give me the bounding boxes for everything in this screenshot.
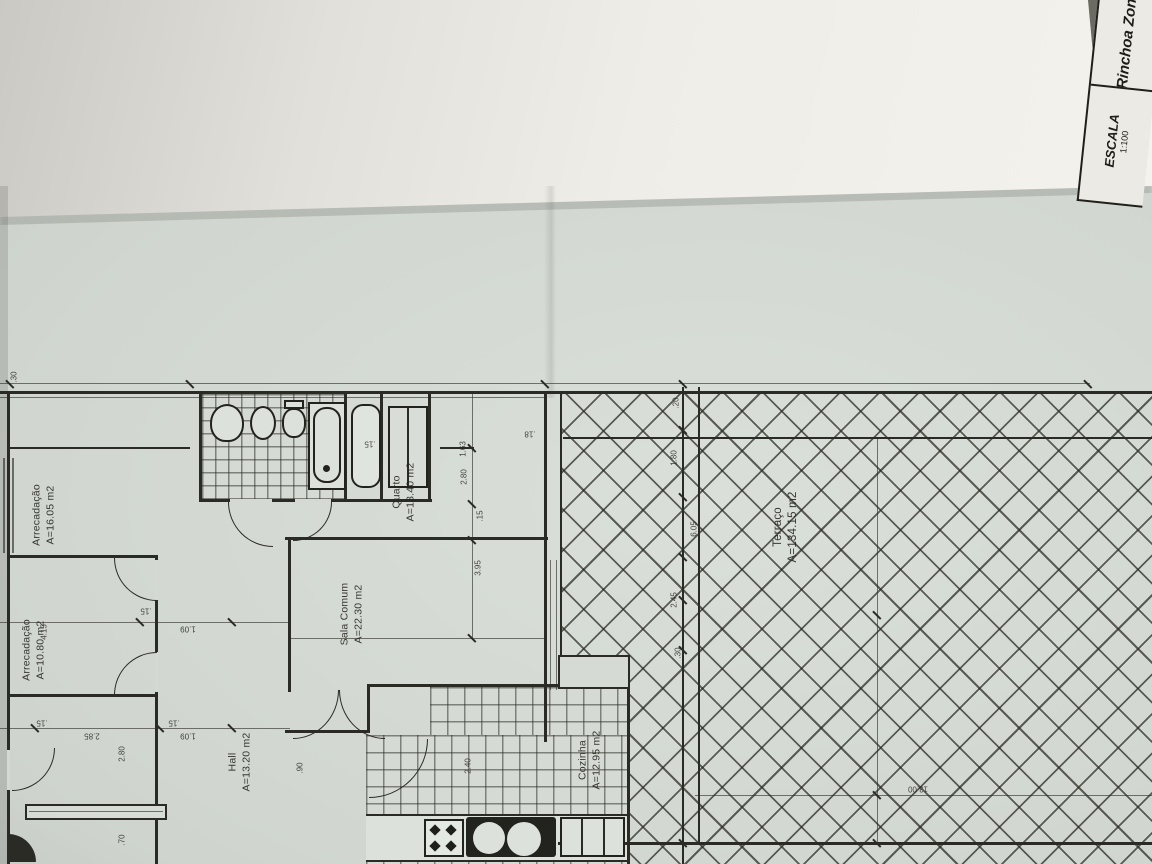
wardrobe (25, 804, 167, 820)
room-name: Arrecadação (20, 619, 34, 681)
room-label-terraco: Terraço A=134.15 m2 (771, 492, 801, 563)
terrace-step (558, 655, 630, 689)
window (12, 458, 14, 553)
kitchen-tiles-upper (430, 687, 627, 737)
window (550, 560, 551, 690)
wall (199, 391, 202, 502)
project-name: Rinchoa Zona (1114, 0, 1141, 89)
dim-label: 1.09 (180, 732, 196, 741)
door-arc (293, 502, 332, 541)
window (556, 560, 557, 690)
room-name: Terraço (771, 507, 786, 547)
dim-label: .18 (524, 430, 535, 439)
room-name: Hall (226, 753, 240, 772)
wall-exterior-right (544, 391, 547, 742)
basin-icon (210, 404, 244, 442)
kitchen-cabinet (560, 817, 625, 857)
dimension-tick (541, 380, 550, 389)
terrace-hatch (560, 394, 1152, 864)
dim-label: .30 (10, 371, 19, 382)
toilet-cistern (284, 400, 304, 409)
room-name: Sala Comum (338, 583, 352, 646)
wall (288, 537, 291, 692)
room-area: A=13.40 m2 (404, 463, 418, 522)
terrace-edge (563, 437, 1152, 439)
dim-label: .15 (168, 719, 179, 728)
wall (8, 447, 190, 449)
wall-exterior-left (7, 391, 10, 864)
toilet-icon (282, 408, 306, 438)
scale-value: 1:100 (1118, 130, 1130, 153)
room-label-quarto: Quarto A=13.40 m2 (390, 463, 417, 522)
door-arc (114, 558, 157, 601)
wall (285, 537, 548, 540)
room-area: A=16.05 m2 (44, 486, 58, 545)
dim-label: 3.95 (474, 560, 483, 576)
door-arc (114, 652, 157, 695)
room-area: A=12.95 m2 (590, 731, 604, 790)
dim-label: 13.00 (908, 785, 928, 794)
sink-bowl (507, 822, 541, 856)
room-name: Quarto (390, 475, 404, 508)
dim-label: 1.63 (459, 441, 468, 457)
bathtub-drain (323, 465, 330, 472)
dimension-line (0, 728, 290, 729)
scanned-floor-plan-photo: Arrecadação A=16.05 m2 Arrecadação A=10.… (0, 0, 1152, 864)
dim-label: 2.40 (464, 758, 473, 774)
dim-label: .15 (364, 440, 375, 449)
wall (0, 391, 1152, 394)
dimension-line (877, 437, 878, 845)
wall (558, 842, 1152, 845)
room-label-hall: Hall A=13.20 m2 (226, 733, 253, 792)
room-name: Cozinha (576, 740, 590, 780)
dim-label: 2.45 (670, 592, 679, 608)
dim-label: .20 (672, 397, 681, 408)
dim-label: .30 (674, 647, 683, 658)
room-name: Arrecadação (30, 484, 44, 546)
dim-label: .15 (140, 607, 151, 616)
dimension-line (698, 387, 700, 845)
room-area: A=134.15 m2 (786, 492, 801, 563)
dim-label: 6.05 (690, 521, 699, 537)
cabinet-divider (603, 819, 605, 855)
wall (440, 447, 474, 449)
dim-label: 2.80 (118, 746, 127, 762)
floor-plan: Arrecadação A=16.05 m2 Arrecadação A=10.… (0, 0, 1152, 864)
dimension-line (288, 638, 545, 639)
title-block-scale-cell: ESCALA 1:100 (1080, 84, 1152, 196)
dim-label: 1.09 (180, 625, 196, 634)
room-area: A=13.20 m2 (240, 733, 254, 792)
dim-label: 1.80 (670, 450, 679, 466)
dim-label: .90 (296, 762, 305, 773)
room-label-cozinha: Cozinha A=12.95 m2 (576, 731, 603, 790)
dimension-line (695, 795, 1152, 796)
basin-icon (250, 406, 276, 440)
cabinet-divider (581, 819, 583, 855)
dim-label: .15 (36, 719, 47, 728)
sink-bowl (473, 822, 505, 854)
room-area: A=22.30 m2 (352, 585, 366, 644)
terrace-edge (560, 391, 562, 657)
door-opening (7, 750, 10, 790)
dimension-line (682, 387, 684, 864)
wardrobe-rail (29, 811, 163, 812)
dim-label: 2.80 (460, 469, 469, 485)
dimension-tick (186, 380, 195, 389)
door-arc (12, 748, 55, 791)
door-arc-filled (8, 834, 36, 862)
door-arc (228, 502, 273, 547)
wall (0, 397, 545, 398)
wall (428, 394, 431, 502)
dimension-tick (1084, 380, 1093, 389)
room-label-sala-comum: Sala Comum A=22.30 m2 (338, 583, 365, 646)
dim-label: 2.85 (84, 732, 100, 741)
dim-label: .15 (476, 510, 485, 521)
stove-icon (424, 819, 464, 857)
window (3, 458, 5, 553)
dimension-line (472, 394, 473, 640)
room-label-arrecadacao-16: Arrecadação A=16.05 m2 (30, 484, 57, 546)
title-block-project-cell: Rinchoa Zona (1091, 0, 1152, 90)
dim-label: 4.15 (40, 624, 49, 640)
dim-label: .70 (118, 834, 127, 845)
